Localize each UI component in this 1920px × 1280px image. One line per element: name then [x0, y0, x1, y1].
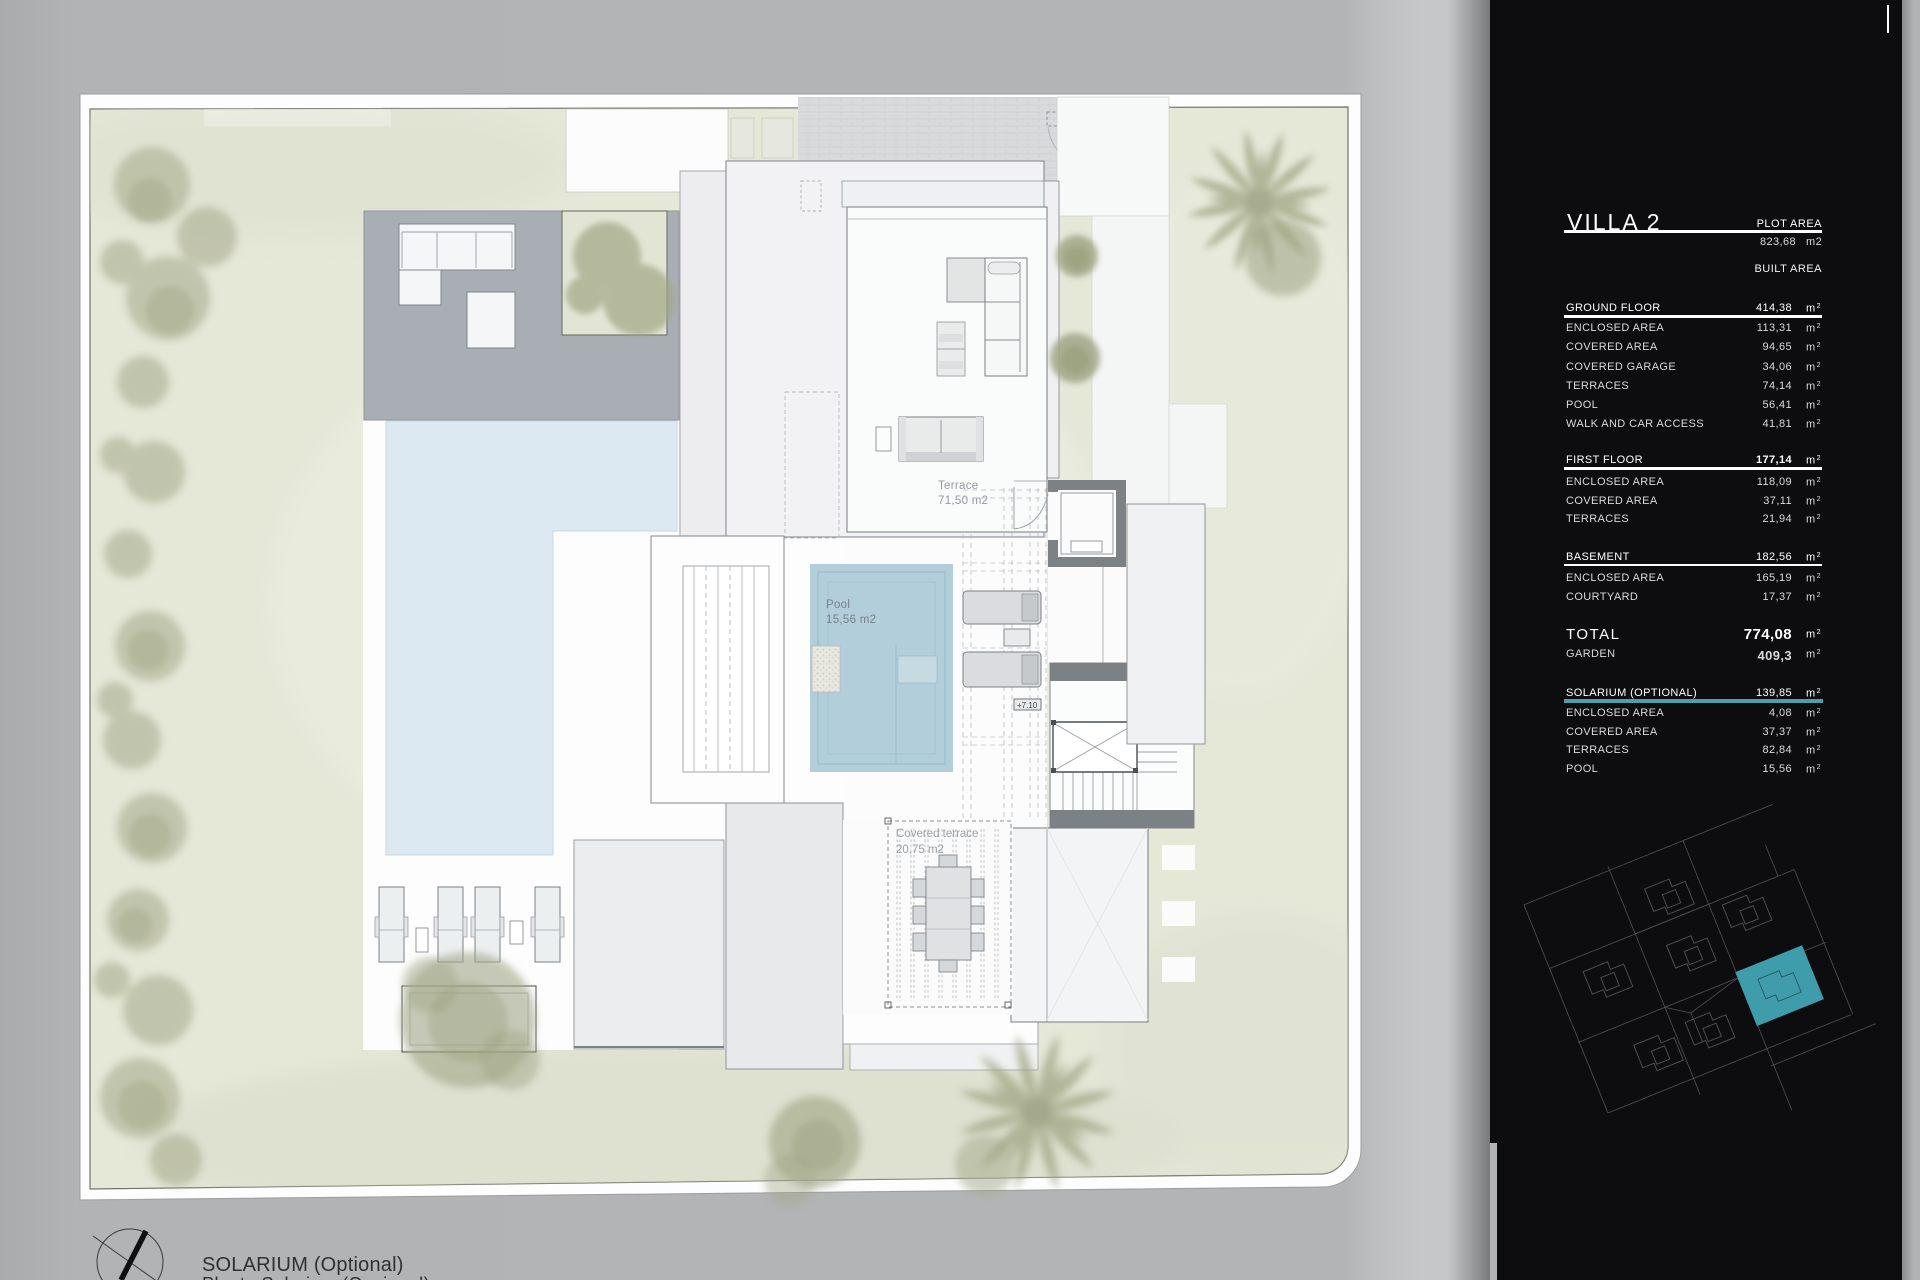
svg-text:Pool: Pool: [826, 599, 850, 611]
svg-text:+7.10: +7.10: [1017, 701, 1038, 710]
svg-text:20,75 m2: 20,75 m2: [896, 844, 944, 856]
svg-text:Covered terrace: Covered terrace: [896, 828, 978, 840]
svg-text:15,56 m2: 15,56 m2: [826, 614, 876, 626]
svg-text:71,50 m2: 71,50 m2: [938, 495, 988, 507]
